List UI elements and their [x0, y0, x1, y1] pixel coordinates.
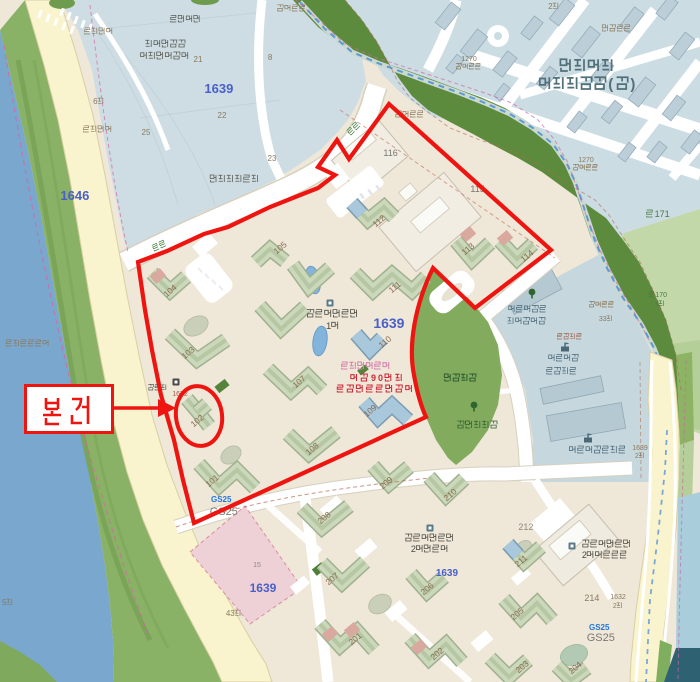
- svg-text:8: 8: [268, 53, 273, 62]
- svg-text:2: 2: [548, 2, 553, 11]
- svg-text:1: 1: [326, 321, 331, 332]
- svg-text:171: 171: [655, 209, 670, 219]
- svg-text:1639: 1639: [632, 445, 648, 452]
- svg-text:1639: 1639: [250, 581, 277, 595]
- svg-text:1639: 1639: [436, 568, 459, 579]
- svg-text:22: 22: [218, 111, 227, 120]
- svg-text:23: 23: [268, 154, 277, 163]
- svg-text:1270: 1270: [578, 157, 594, 164]
- svg-text:1632: 1632: [610, 594, 626, 601]
- svg-text:1639: 1639: [204, 81, 233, 96]
- svg-text:GS25: GS25: [587, 632, 615, 644]
- svg-text:43: 43: [226, 609, 235, 618]
- svg-text:170: 170: [655, 292, 667, 299]
- svg-text:1639: 1639: [373, 315, 404, 331]
- svg-text:GS25: GS25: [211, 495, 232, 504]
- svg-text:(: (: [608, 76, 613, 93]
- svg-text:212: 212: [518, 522, 533, 532]
- svg-text:5: 5: [2, 598, 7, 607]
- svg-text:1646: 1646: [60, 188, 89, 203]
- svg-text:214: 214: [584, 593, 599, 603]
- svg-text:2: 2: [582, 550, 587, 560]
- svg-text:25: 25: [142, 128, 151, 137]
- svg-text:2: 2: [411, 544, 416, 554]
- svg-text:6: 6: [93, 97, 98, 106]
- svg-text:33: 33: [599, 316, 607, 323]
- svg-text:90: 90: [371, 373, 385, 383]
- svg-text:1270: 1270: [461, 56, 477, 63]
- svg-text:3: 3: [655, 301, 659, 308]
- svg-text:2: 2: [635, 453, 639, 460]
- svg-text:2: 2: [613, 603, 617, 610]
- svg-text:GS25: GS25: [589, 623, 610, 632]
- svg-text:21: 21: [194, 55, 203, 64]
- svg-text:): ): [630, 76, 635, 93]
- svg-text:15: 15: [253, 562, 261, 569]
- svg-text:116: 116: [383, 148, 397, 158]
